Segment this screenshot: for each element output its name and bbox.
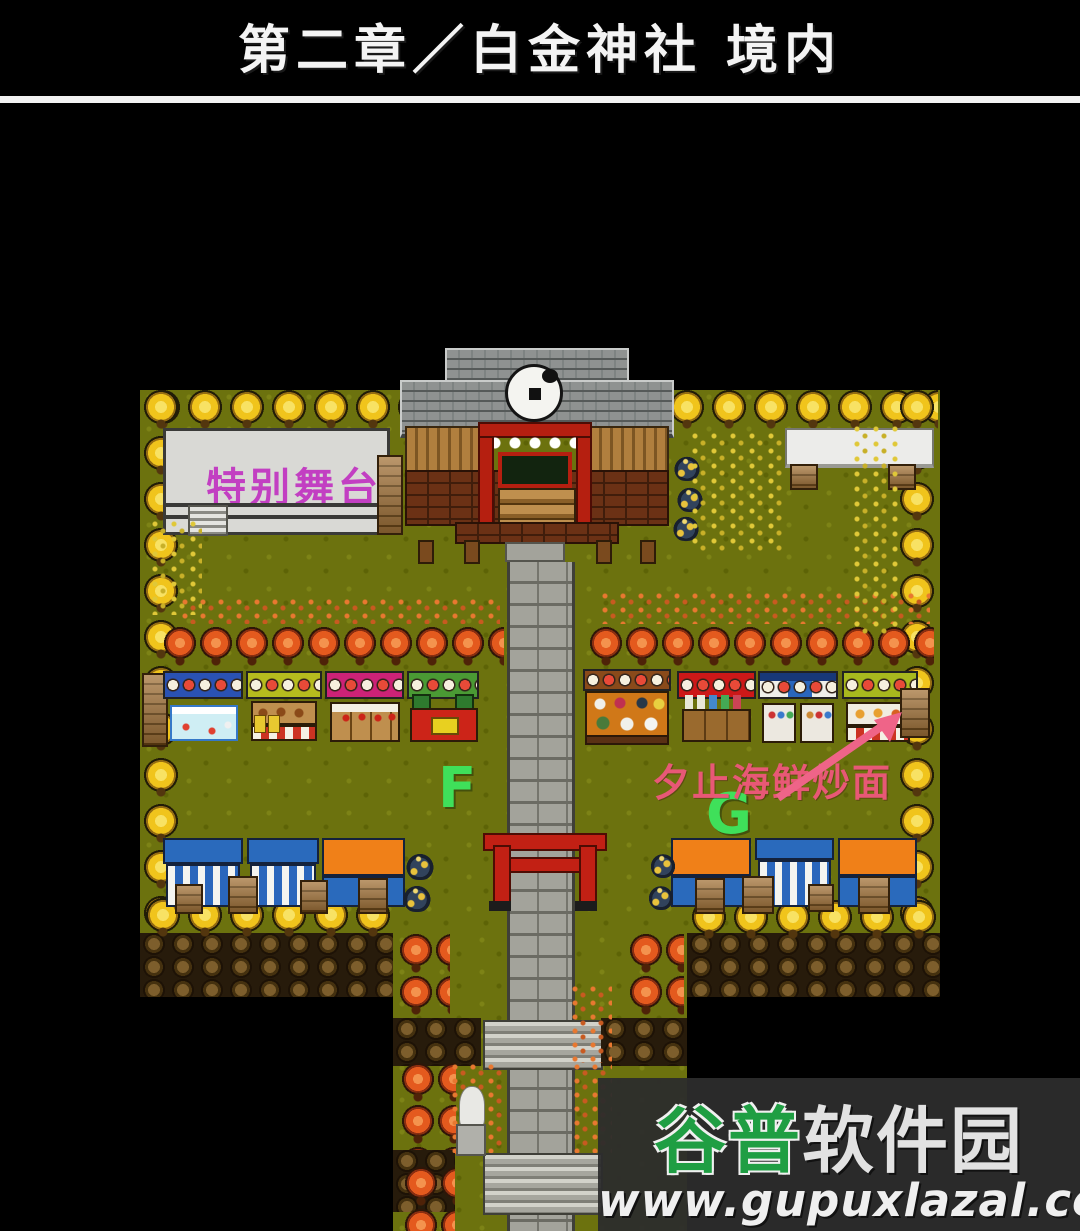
tent-crate-r4 [858,876,890,914]
shrine-stilt-2 [464,540,480,564]
lantern-rock-tents-r1 [650,852,676,878]
tent-crate-l1 [175,884,203,914]
marker-f: F [438,756,476,821]
rocky-ledge-right [687,933,940,997]
crate-stack-shrine-left [377,455,403,535]
stairs-lower [483,1153,603,1215]
shrine-building [400,348,670,566]
watermark: 谷普软件园 www.gupuxlazal.com [598,1078,1080,1231]
leaf-specks-left [180,598,500,624]
page-title: 第二章／白金神社 境内 [0,8,1080,83]
autumn-col-mid-left [400,1062,456,1154]
lantern-rock-tents-r2 [648,884,674,910]
rocky-ledge-left [140,933,393,997]
leaf-specks-corridor-top [570,985,612,1063]
tent-crate-l3 [300,880,328,914]
autumn-col-corridor-left [398,933,450,1019]
rocky-corridor-left [393,1018,481,1066]
stall-games [407,671,479,745]
autumn-col-bottom-left [403,1166,455,1231]
tent-crate-r3 [808,884,834,912]
screenshot-root: 第二章／白金神社 境内 [0,0,1080,1231]
board-leg-left [790,464,818,490]
gold-specks-right-edge [852,425,898,635]
tent-crate-r1 [695,878,725,914]
autumn-row-left [162,626,504,668]
stall-goldfish [163,671,243,745]
watermark-brand: 谷普软件园 [598,1082,1080,1187]
lantern-rock-tents-l2 [402,884,432,912]
shrine-crest [505,364,563,422]
tent-crate-r2 [742,876,774,914]
shrine-wall-right [589,426,669,476]
shrine-wall-left [405,426,485,476]
shrine-stone-step [505,542,565,562]
torii-gate [483,833,603,913]
gold-specks-stage-left [150,520,202,615]
shrine-stilt-4 [640,540,656,564]
gold-specks-shrine-right [690,432,784,552]
komainu-statue [456,1086,486,1156]
tent-crate-l4 [358,878,388,914]
shrine-stilt-3 [596,540,612,564]
special-stage: 特别舞台 [163,428,390,535]
annotation-arrow [650,690,930,810]
stall-takoyaki [246,671,322,745]
watermark-brand-green: 谷普 [654,1099,802,1183]
lantern-rock-tents-l1 [405,852,435,880]
tent-crate-l2 [228,876,258,914]
autumn-col-corridor-right [628,933,684,1019]
shrine-stilt-1 [418,540,434,564]
stall-candy [325,671,404,745]
rocky-corridor-right [601,1018,687,1066]
watermark-brand-rest: 软件园 [802,1099,1024,1183]
watermark-url: www.gupuxlazal.com [598,1174,1080,1227]
header-divider [0,96,1080,103]
